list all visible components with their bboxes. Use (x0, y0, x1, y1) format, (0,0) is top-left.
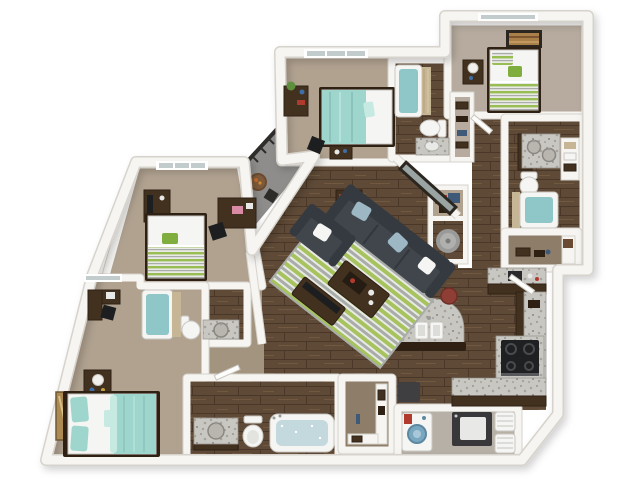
window (304, 49, 368, 58)
suitcase (563, 239, 573, 248)
bathtub (512, 192, 558, 228)
closet-bottom (342, 378, 392, 450)
vanity-sink (203, 320, 239, 339)
window (84, 274, 122, 282)
plant (287, 82, 296, 91)
floorplan-render (0, 0, 640, 480)
double-vanity (518, 134, 560, 170)
stove (496, 336, 544, 380)
nightstand (463, 60, 483, 84)
bathtub (142, 290, 181, 339)
wall-art (506, 30, 542, 48)
bed (145, 213, 207, 281)
window (156, 161, 208, 170)
bathtub (395, 65, 431, 117)
bed (319, 87, 395, 147)
dresser (284, 82, 308, 117)
closet-top-right (450, 92, 474, 162)
soaking-tub (270, 414, 334, 452)
bed (63, 391, 160, 457)
toilet (243, 416, 263, 447)
window (478, 13, 538, 21)
vanity-sink (416, 138, 449, 155)
lamp (468, 63, 478, 73)
island-faucet (427, 316, 431, 320)
kitchen-cabinet (398, 382, 420, 402)
vanity-sink (194, 418, 238, 450)
dryer (452, 412, 492, 446)
washer (402, 413, 432, 451)
linen-shelves (561, 138, 579, 180)
bottom-counter (452, 378, 546, 406)
side-table (330, 146, 352, 159)
toilet (420, 120, 446, 137)
lamp (93, 375, 104, 386)
closet-right (505, 232, 578, 268)
floorplan-svg (0, 0, 640, 480)
bed (487, 47, 541, 113)
